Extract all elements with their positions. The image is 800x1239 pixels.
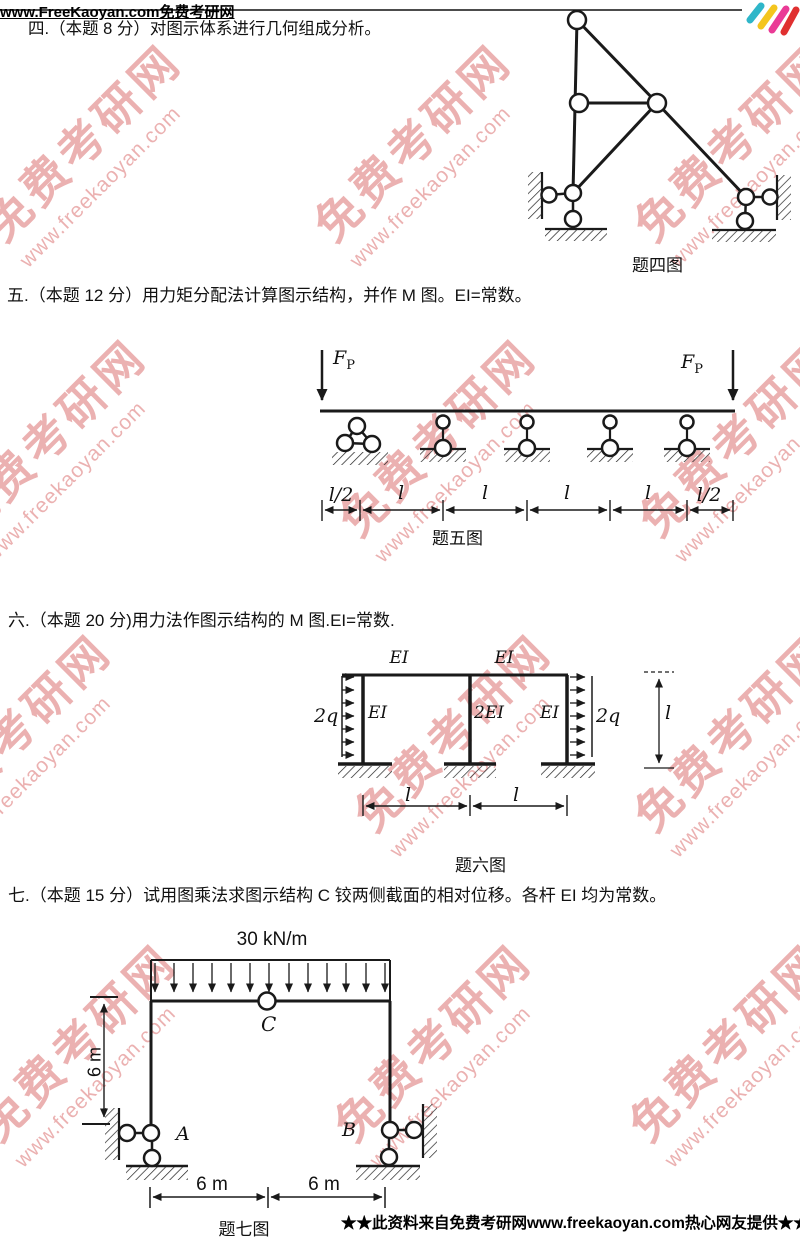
support-b-label: B (342, 1119, 356, 1141)
support-a-label: A (176, 1123, 190, 1145)
dim-label: l (645, 482, 651, 504)
beam-diagram (320, 350, 735, 521)
dim-label: l (564, 482, 570, 504)
column-ei-label: EI (368, 703, 387, 723)
problem6-caption: 题六图 (438, 851, 523, 876)
span-label: l (405, 784, 411, 806)
column-ei-label: 2EI (474, 703, 504, 723)
span-6m-label: 6 m (308, 1174, 340, 1196)
height-6m-label: 6 m (85, 1047, 106, 1077)
problem5-caption: 题五图 (415, 524, 500, 549)
frame6-diagram (338, 672, 674, 816)
span-6m-label: 6 m (196, 1174, 228, 1196)
problem4-title: 四.（本题 8 分）对图示体系进行几何组成分析。 (28, 15, 381, 39)
load-2q-label-right: 2q (596, 705, 620, 727)
height-label: l (665, 702, 671, 724)
dim-label: l/2 (697, 484, 722, 506)
freekaoyan-logo-icon (742, 0, 800, 36)
span-label: l (513, 784, 519, 806)
force-label-left: FP (333, 347, 355, 373)
truss-diagram (528, 11, 791, 242)
footer-credit-text: ★★此资料来自免费考研网www.freekaoyan.com热心网友提供★★ (341, 1211, 800, 1233)
hinge-c-label: C (261, 1012, 276, 1036)
problem7-title: 七.（本题 15 分）试用图乘法求图示结构 C 铰两侧截面的相对位移。各杆 EI… (8, 881, 666, 906)
beam-ei-label: EI (494, 648, 513, 668)
load-2q-label-left: 2q (314, 705, 338, 727)
dim-label: l (482, 482, 488, 504)
beam-ei-label: EI (389, 648, 408, 668)
dim-label: l (398, 482, 404, 504)
column-ei-label: EI (540, 703, 559, 723)
exam-page: 免费考研网www.freekaoyan.com免费考研网www.freekaoy… (0, 0, 800, 1239)
problem5-title: 五.（本题 12 分）用力矩分配法计算图示结构，并作 M 图。EI=常数。 (7, 281, 532, 306)
problem6-title: 六.（本题 20 分)用力法作图示结构的 M 图.EI=常数. (8, 606, 395, 631)
force-label-right: FP (681, 351, 703, 377)
load-value-label: 30 kN/m (237, 929, 308, 951)
dim-label: l/2 (329, 484, 354, 506)
frame7-diagram (82, 960, 437, 1208)
problem7-caption: 题七图 (199, 1215, 289, 1239)
problem4-caption: 题四图 (615, 251, 700, 276)
